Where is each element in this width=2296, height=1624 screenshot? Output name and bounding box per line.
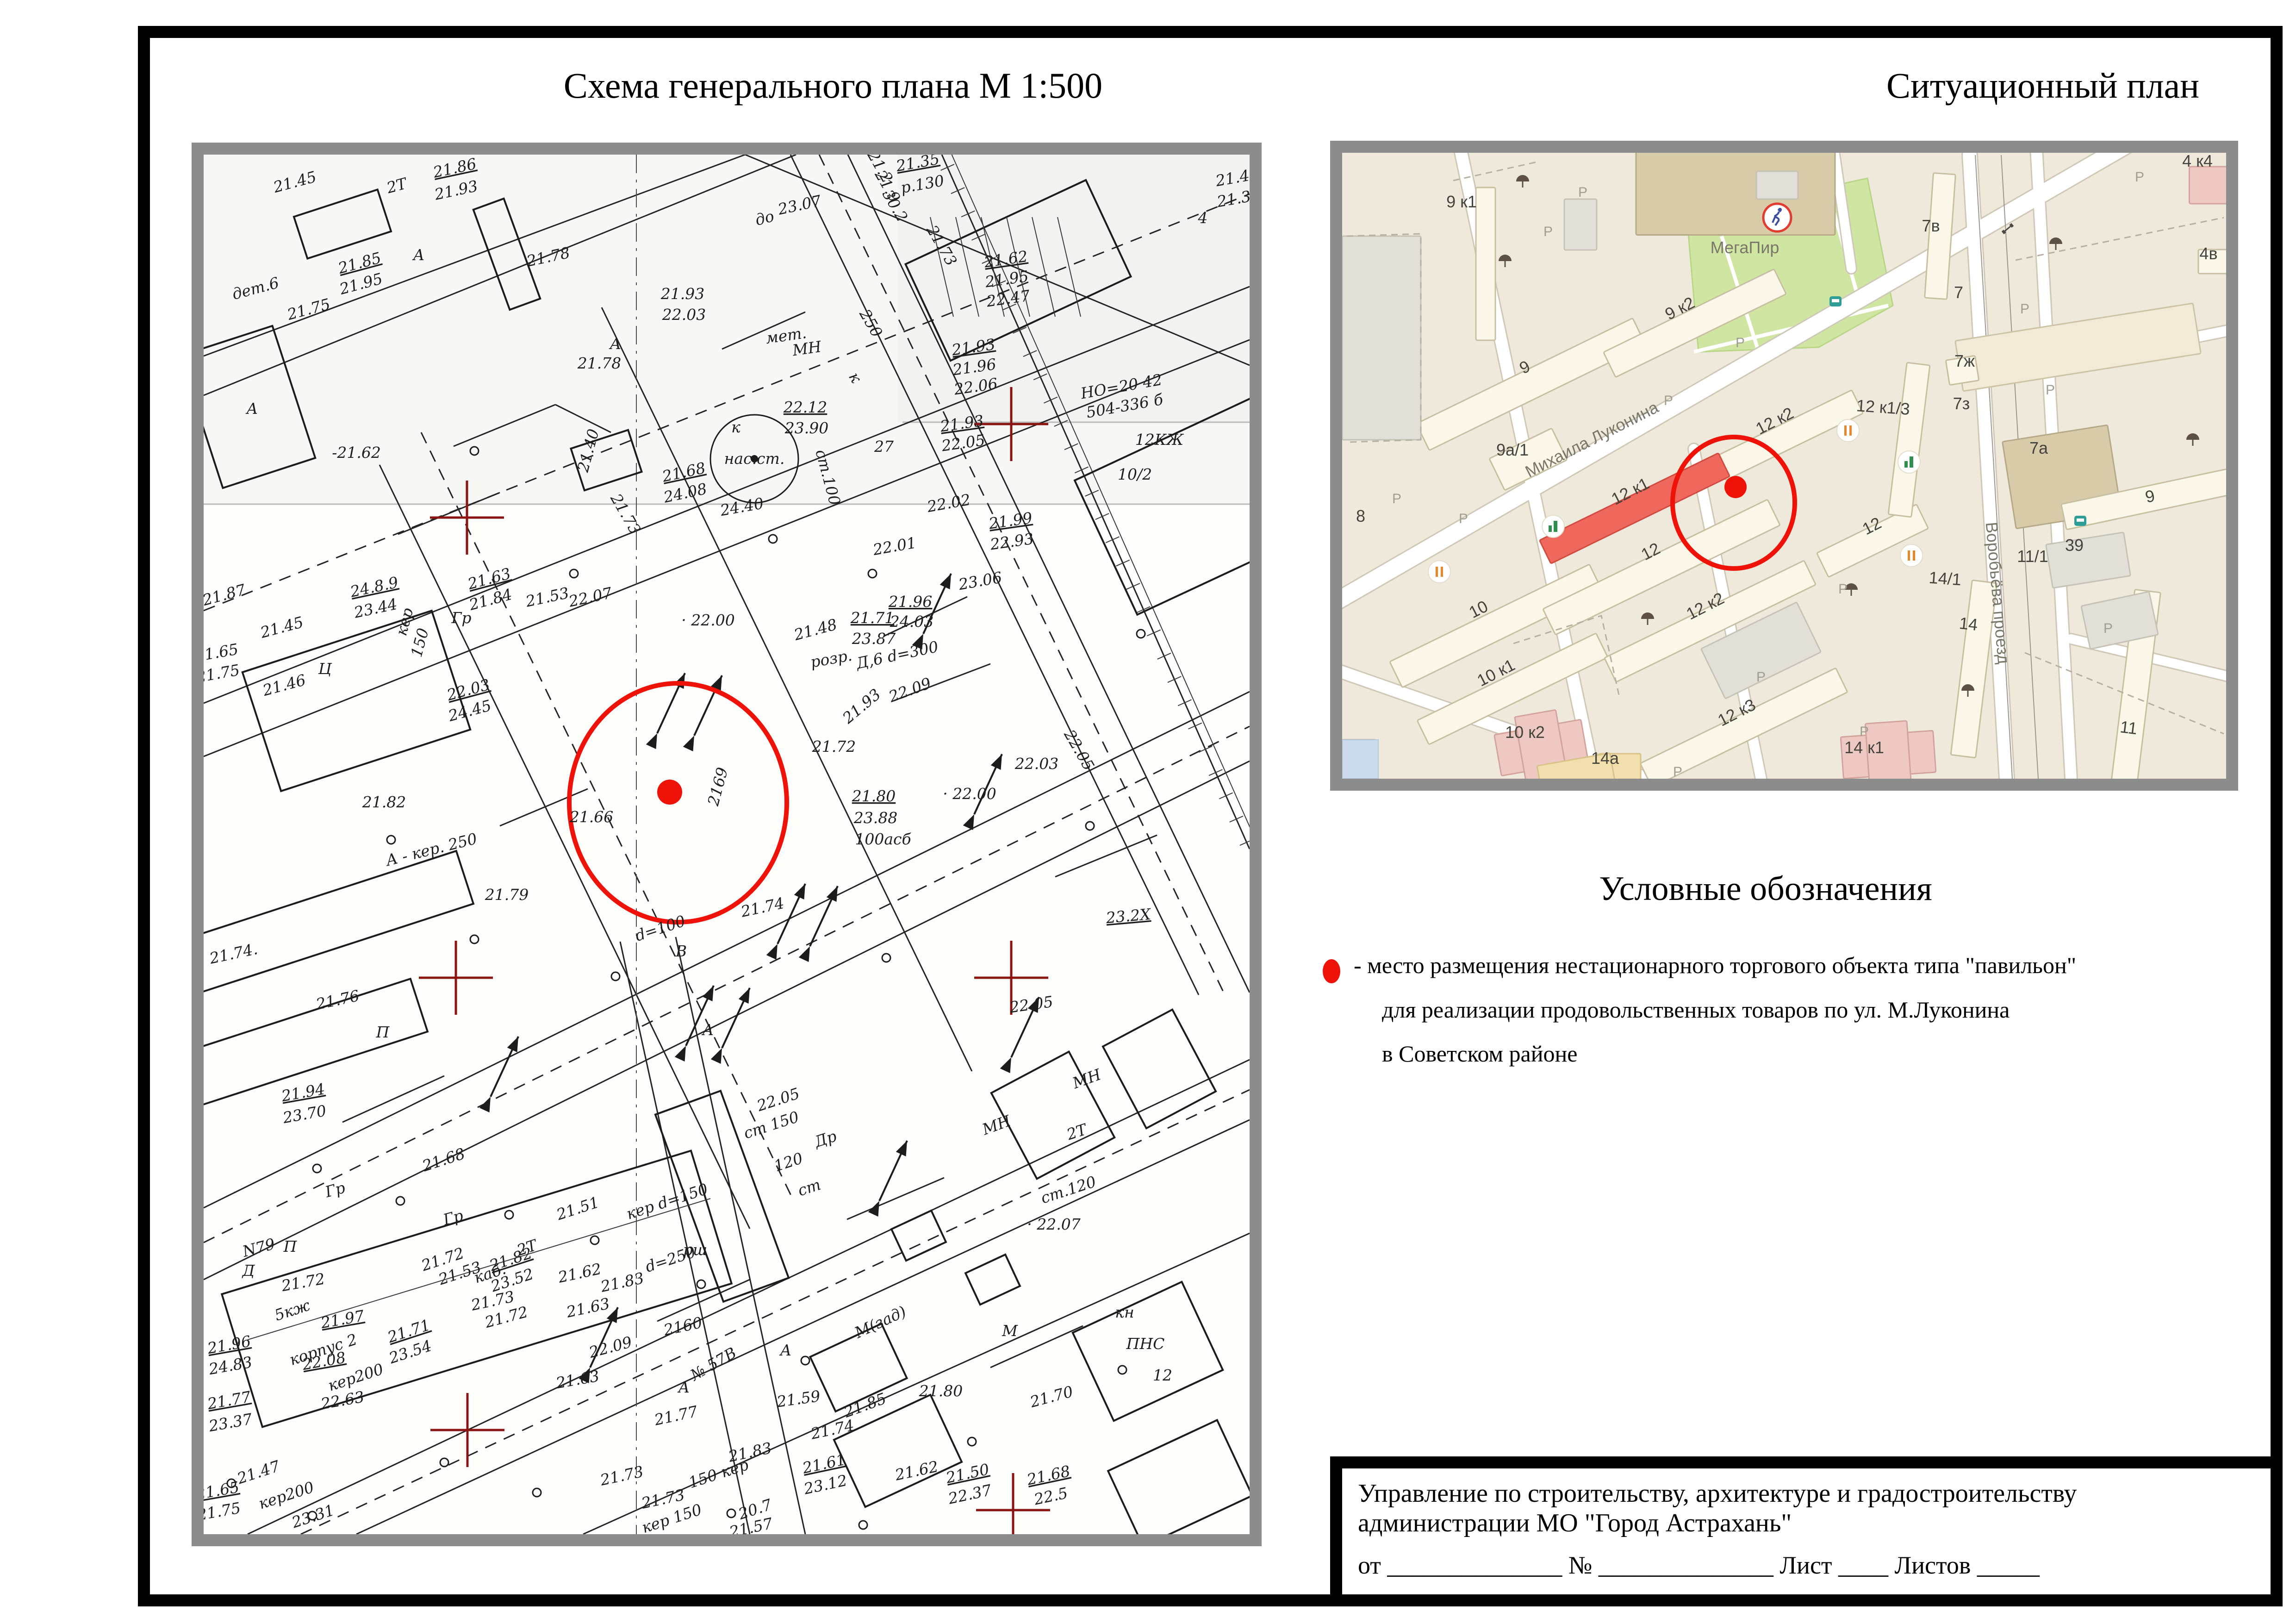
map-label: Д [242,1262,255,1280]
map-label: 2160 [662,1313,704,1339]
manhole [591,1236,599,1244]
railway-tie [1199,746,1212,752]
building-outline [1103,1010,1216,1128]
flow-arrow [810,886,838,946]
map-label: 7з [1953,394,1970,413]
megapir-icon [1763,204,1791,231]
map-label: А [678,1378,690,1396]
flow-arrow [974,754,1002,814]
map-line [847,1178,944,1219]
map-label: · 22.00 [943,785,996,803]
map-label: 21.74 [809,1416,856,1443]
map-label: · 22.07 [1027,1215,1080,1233]
map-label: 21.72 [280,1269,326,1295]
map-label: 21.94 [280,1080,326,1105]
map-label: рш [683,1241,707,1259]
parking-letter: Р [2046,382,2055,398]
parking-letter: Р [1578,185,1587,200]
map-label: 21.45 [258,613,305,642]
map-label: 22.12 [783,398,827,416]
map-label: 21.80 [919,1382,963,1400]
title-block-line-1: Управление по строительству, архитектуре… [1358,1479,2255,1508]
map-label: П [376,1023,390,1041]
map-label: 14а [1591,749,1619,768]
parking-letter: Р [1736,335,1745,350]
map-label: 27 [874,437,894,456]
legend-marker-dot [1323,959,1340,983]
map-label: · 22.00 [681,611,734,629]
map-label: 22.03 [1014,755,1058,773]
manhole [868,569,877,578]
sitplan-title: Ситуационный план [1825,65,2260,106]
map-label: 23.2Х [1105,905,1152,927]
map-label: 22.03 [662,306,706,324]
map-label: 21.59 [775,1387,821,1411]
manhole [769,535,777,543]
sitplan-map: РРРРРРРРРРРРРР 9 к199 к29а/11010 к110 к2… [1330,141,2238,791]
map-label: 21.53 [523,584,571,611]
date-blank: ______________ [1387,1551,1562,1579]
sheets-blank: _____ [1977,1551,2040,1579]
map-label: 7в [1922,216,1940,235]
map-line [342,1076,444,1122]
map-label: 21.51 [554,1193,602,1224]
map-label: 100асб [855,830,911,848]
manhole [440,1458,448,1467]
map-label: 22.63 [319,1387,366,1413]
manhole [570,569,578,578]
map-label: А [246,400,258,418]
map-label: кн [1115,1303,1134,1321]
restaurant-icon [1428,561,1450,583]
map-label: 22.01 [871,533,918,559]
map-label: 120 [772,1149,805,1175]
map-label: А [609,335,622,353]
map-label: 21.82 [362,793,406,811]
map-line [657,1280,750,1321]
parking-letter: Р [1756,669,1766,685]
bus-stop-icon [2074,516,2086,526]
railway-tie [1178,700,1191,706]
map-label: 23.06 [957,568,1003,593]
map-label: 21.87 [204,581,248,609]
map-label: 21.99 [987,509,1033,533]
map-label: Гр [451,609,472,627]
railway-tie [1209,769,1222,775]
railway-tie [1168,676,1181,682]
parking-letter: Р [1459,511,1468,526]
flow-arrow [879,1141,907,1201]
map-label: 22.05 [1060,726,1098,774]
map-label: 22.05 [1008,993,1054,1017]
map-label: Др [811,1127,839,1151]
bus-stop-icon [1829,296,1842,306]
building [1342,236,1421,440]
manhole [611,972,620,981]
red-location-dot [657,780,682,805]
map-label: кер200 [256,1478,316,1512]
parking-letter: Р [1392,491,1401,506]
map-label: 12 [1153,1366,1172,1384]
map-label: Гр [323,1178,347,1201]
manhole [1137,630,1145,638]
number-label: № [1568,1551,1593,1579]
red-location-circle [569,683,787,922]
map-label: 21.76 [314,987,361,1013]
map-label: 21.63 [554,1367,601,1392]
map-label: 21.93 [839,685,884,727]
flow-arrow [722,988,750,1048]
railway-tie [1106,537,1119,543]
parking-letter: Р [1543,224,1553,239]
restaurant-icon [1837,419,1859,442]
alcohol-shop-icon [1898,451,1920,473]
map-label: 21.77 [205,1387,252,1413]
map-label: А [702,1021,714,1039]
manhole [470,935,479,943]
building [1476,187,1495,340]
building-outline [965,1255,1020,1305]
sheets-label: Листов [1895,1551,1971,1579]
map-label: 21.93 [660,285,704,303]
railway-tie [1230,816,1243,822]
genplan-map: 21.452Т21.8621.93до23.0721.35р.13021.221… [192,143,1262,1546]
map-label: 21.79 [485,886,529,904]
manhole [1086,822,1094,830]
map-label: 9 к1 [1446,192,1477,211]
map-label: 21.47 [235,1457,282,1488]
parking-letter: Р [1664,393,1673,408]
map-label: 10 к2 [1505,723,1545,742]
map-label: 21.70 [1027,1382,1075,1411]
map-label: А [779,1341,792,1359]
map-label: 12 к1/3 [1856,396,1910,418]
from-label: от [1358,1551,1381,1579]
map-label: -21.62 [332,443,381,462]
restaurant-icon [1900,544,1923,567]
map-label: 23.88 [853,809,897,827]
map-label: 21.77 [652,1402,699,1429]
map-label: ПНС [1126,1335,1165,1353]
building [2190,167,2227,204]
pond [1342,740,1378,779]
flow-arrow [778,884,805,944]
grid-crosses [419,387,1050,1534]
map-label: 8 [1356,506,1365,525]
title-block-line-2: администрации МО "Город Астрахань" [1358,1508,2255,1538]
map-label: 7а [2029,438,2048,457]
parking-letter: Р [2020,301,2029,317]
map-label: А - кер. 250 [383,830,479,870]
map-label: 23.37 [207,1410,254,1435]
building-outline [204,851,473,995]
map-label: МегаПир [1711,238,1780,257]
map-label: 2169 [704,765,732,808]
title-block-row: от ______________ № ______________ Лист … [1358,1551,2255,1580]
building [1636,153,1835,235]
legend-line-3: в Советском районе [1382,1040,1577,1067]
manhole [882,954,890,962]
railway-tie [1147,630,1160,636]
map-label: 21.71 [850,609,894,627]
map-label: 39 [2065,536,2084,555]
map-label: МН [979,1112,1014,1139]
map-label: М(зад) [851,1302,908,1342]
parking-letter: Р [2135,169,2144,185]
manhole [968,1437,976,1446]
map-label: 11 [2119,717,2138,738]
map-line [204,761,1250,1280]
manhole [313,1164,321,1173]
map-label: 23.31 [289,1501,337,1532]
map-label: 5кж [272,1296,312,1324]
map-label: 21.48 [791,615,839,644]
map-label: ст [796,1175,823,1199]
map-label: М [1002,1322,1018,1340]
map-label: 22.09 [886,674,933,706]
map-line [1055,835,1157,877]
map-label: 7ж [1954,351,1975,370]
map-label: П [283,1237,298,1255]
map-label: 4 к4 [2182,153,2213,170]
map-label: 21.68 [420,1144,467,1175]
railway-tie [1219,793,1232,799]
map-label: 21.72 [812,737,856,756]
railway-tie [1188,723,1202,729]
map-label: 22.93 [989,530,1035,554]
map-label: 11/1 [2017,547,2048,566]
map-label: 21.63 [564,1294,611,1321]
map-label: 21.75 [204,1499,242,1524]
map-label: 22.5 [1032,1484,1070,1509]
map-label: 21.75 [204,661,241,686]
map-label: 21.73 [598,1462,645,1489]
genplan-map-svg: 21.452Т21.8621.93до23.0721.35р.13021.221… [204,155,1250,1534]
map-label: 23.87 [852,630,896,648]
railway-tie [1157,653,1171,659]
map-label: 10/2 [1118,465,1152,483]
map-label: 21.66 [569,808,613,826]
map-label: 22.09 [586,1333,634,1362]
parking-letter: Р [1838,581,1848,597]
genplan-title: Схема генерального плана М 1:500 [546,65,1120,106]
title-block: Управление по строительству, архитектуре… [1330,1456,2283,1606]
map-label: N79 [240,1235,277,1261]
map-label: 14/1 [1928,568,1962,589]
map-label: 14 [1958,613,1979,634]
sheet: { "page": { "gp_title": "Схема генеральн… [0,0,2296,1624]
railway-tie [1126,583,1140,589]
parking-letter: Р [1860,724,1869,739]
map-label: 2Т [1064,1120,1090,1144]
map-label: ст.120 [1039,1172,1098,1207]
railway-tie [1095,513,1109,519]
map-label: 21.83 [598,1269,646,1296]
map-label: 21.97 [319,1306,366,1332]
map-label: 21.62 [893,1457,940,1484]
number-blank: ______________ [1599,1551,1773,1579]
map-label: 21.62 [556,1260,603,1287]
map-label: 22.07 [566,584,614,611]
manhole [801,1356,809,1365]
map-label: В [675,942,687,960]
manhole [396,1197,404,1205]
legend-line-2: для реализации продовольственных товаров… [1382,996,2010,1023]
map-label: А [412,246,425,264]
parking-letter: Р [1673,764,1682,779]
sheet-label: Лист [1780,1551,1832,1579]
map-label: нас.ст. [724,450,785,468]
map-label: 14 к1 [1844,738,1884,757]
flow-arrow [491,1037,518,1097]
map-label: Ц [318,660,332,678]
manhole [1118,1366,1126,1374]
map-label: 9а/1 [1496,440,1529,459]
manhole [533,1488,541,1497]
sitplan-map-svg: РРРРРРРРРРРРРР 9 к199 к29а/11010 к110 к2… [1342,153,2226,779]
flow-arrows [491,574,1039,1368]
map-label: МН [1070,1065,1104,1093]
manhole [505,1211,513,1219]
map-label: 21.78 [577,354,621,372]
sheet-blank: ____ [1838,1551,1888,1579]
map-label: 21.80 [852,787,896,805]
legend-line-1: - место размещения нестационарного торго… [1354,952,2076,979]
railway-tie [1116,560,1129,566]
map-label: 12КЖ [1135,431,1184,449]
map-label: 21.74. [207,940,259,968]
map-label: кер d=150 [624,1180,710,1223]
building-outline [1108,1420,1250,1534]
map-label: 23.90 [784,419,828,437]
map-label: к [731,418,740,436]
manhole [727,1509,735,1518]
red-location-dot [1724,476,1747,498]
map-label: 23.70 [281,1101,328,1127]
building [1564,199,1597,250]
manhole [697,1280,705,1288]
map-label: 7 [1954,283,1963,302]
map-label: 24.03 [890,612,933,631]
manhole [859,1521,867,1529]
map-label: 4в [2199,244,2217,263]
map-label: 150 кер [686,1455,751,1492]
map-label: 21.46 [260,671,307,700]
building [1756,171,1798,199]
legend-title: Условные обозначения [1476,869,2055,909]
map-dashed-line [204,726,1250,1243]
manhole [387,836,395,844]
map-label: 21.96 [888,593,932,611]
map-label: 4 [1198,209,1208,227]
map-label: розр. [809,646,853,671]
parking-letter: Р [2103,621,2113,636]
alcohol-shop-icon [1542,515,1564,537]
